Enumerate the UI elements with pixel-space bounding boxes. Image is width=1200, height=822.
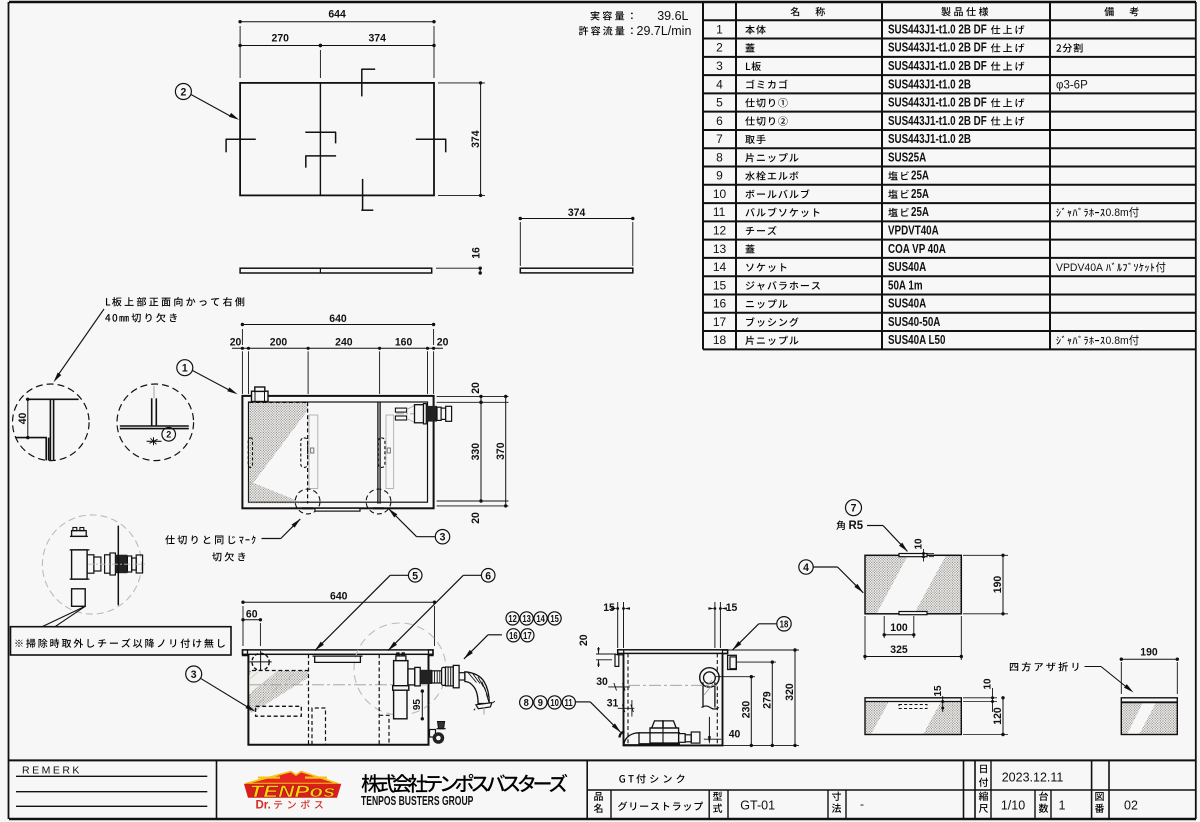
svg-text:1: 1 [182, 362, 188, 374]
svg-text:20: 20 [230, 336, 242, 348]
svg-text:SUS40A: SUS40A [888, 298, 926, 311]
svg-text:20: 20 [470, 512, 482, 524]
svg-text:240: 240 [335, 336, 352, 348]
svg-text:16: 16 [470, 247, 482, 259]
svg-text:200: 200 [270, 336, 287, 348]
svg-text:10: 10 [713, 187, 727, 201]
svg-text:8: 8 [524, 698, 530, 709]
svg-text:SUS40-50A: SUS40-50A [888, 316, 940, 329]
svg-text:120: 120 [992, 707, 1004, 724]
svg-text:7: 7 [851, 502, 857, 514]
svg-text:5: 5 [716, 96, 723, 110]
svg-text:TENPOS BUSTERS GROUP: TENPOS BUSTERS GROUP [361, 794, 473, 808]
svg-text:25A: 25A [911, 188, 929, 201]
svg-text:0.8m付: 0.8m付 [1106, 206, 1140, 219]
svg-text:11: 11 [565, 697, 573, 708]
svg-text:-: - [860, 797, 864, 811]
svg-text:0.8m付: 0.8m付 [1106, 334, 1140, 347]
svg-text:25A: 25A [911, 206, 929, 219]
svg-text:R5: R5 [849, 519, 864, 532]
svg-text:18: 18 [713, 333, 727, 347]
svg-text:SUS443J1-t1.0 2B DF: SUS443J1-t1.0 2B DF [888, 115, 989, 128]
svg-text:1: 1 [1059, 799, 1066, 813]
svg-text:17: 17 [713, 315, 727, 329]
svg-text:374: 374 [568, 207, 585, 219]
svg-text:SUS40A: SUS40A [888, 261, 926, 274]
svg-text:SUS443J1-t1.0 2B DF: SUS443J1-t1.0 2B DF [888, 97, 989, 110]
svg-text:31: 31 [607, 697, 619, 709]
svg-text:φ3-6P: φ3-6P [1056, 79, 1088, 91]
svg-text:5: 5 [412, 570, 418, 582]
svg-text:370: 370 [495, 442, 507, 459]
svg-text:6: 6 [485, 570, 491, 582]
svg-text:644: 644 [328, 8, 345, 20]
svg-text:2: 2 [716, 41, 723, 55]
svg-text:15: 15 [713, 278, 727, 292]
svg-text:270: 270 [272, 32, 289, 44]
svg-text:60: 60 [246, 608, 258, 620]
svg-text:4: 4 [803, 562, 809, 574]
svg-text:SUS443J1-t1.0 2B DF: SUS443J1-t1.0 2B DF [888, 60, 989, 73]
svg-text:GT-01: GT-01 [740, 799, 775, 813]
svg-text:10: 10 [550, 697, 559, 708]
svg-text:374: 374 [368, 32, 385, 44]
svg-text:10: 10 [913, 538, 924, 549]
svg-text:20: 20 [437, 336, 449, 348]
svg-text:16: 16 [509, 630, 518, 641]
svg-text:6: 6 [716, 114, 723, 128]
svg-text:190: 190 [1140, 646, 1157, 658]
svg-text:SUS443J1-t1.0 2B: SUS443J1-t1.0 2B [888, 133, 971, 146]
svg-text:640: 640 [330, 590, 347, 602]
svg-text:REMERK: REMERK [22, 765, 82, 777]
svg-text:7: 7 [716, 132, 723, 146]
svg-text:20: 20 [470, 382, 482, 394]
svg-text:18: 18 [780, 618, 789, 629]
svg-text:29.7L/min: 29.7L/min [637, 24, 692, 38]
svg-text:2: 2 [166, 430, 171, 440]
svg-text:17: 17 [523, 630, 532, 641]
svg-text:100: 100 [890, 622, 907, 634]
svg-text:3: 3 [191, 669, 197, 681]
svg-text:SUS443J1-t1.0 2B DF: SUS443J1-t1.0 2B DF [888, 23, 989, 36]
svg-text:SUS40A L50: SUS40A L50 [888, 334, 945, 347]
svg-text:30: 30 [596, 676, 608, 688]
svg-text:10: 10 [982, 678, 993, 689]
svg-text:50A 1m: 50A 1m [888, 279, 923, 292]
svg-text:SUS443J1-t1.0 2B DF: SUS443J1-t1.0 2B DF [888, 42, 989, 55]
svg-text:COA VP 40A: COA VP 40A [888, 243, 946, 256]
svg-text:40: 40 [17, 413, 29, 425]
svg-text:14: 14 [536, 613, 545, 624]
svg-text:374: 374 [470, 130, 482, 147]
svg-text:9: 9 [716, 169, 723, 183]
svg-text:15: 15 [933, 685, 944, 696]
svg-text:15: 15 [603, 602, 615, 614]
svg-text:11: 11 [713, 205, 726, 219]
svg-text:40: 40 [729, 728, 741, 740]
svg-text:325: 325 [890, 644, 907, 656]
svg-text:12: 12 [713, 224, 727, 238]
svg-text:VPDVT40A: VPDVT40A [888, 224, 939, 237]
svg-text:39.6L: 39.6L [657, 9, 688, 23]
svg-text:02: 02 [1124, 799, 1138, 813]
svg-text:190: 190 [992, 576, 1004, 593]
svg-text:13: 13 [522, 613, 531, 624]
svg-text:160: 160 [395, 336, 412, 348]
svg-text:3: 3 [716, 59, 723, 73]
svg-text:4: 4 [716, 77, 723, 91]
svg-text:640: 640 [329, 313, 346, 325]
svg-text:Dr.: Dr. [256, 799, 271, 811]
svg-text:SUS443J1-t1.0 2B: SUS443J1-t1.0 2B [888, 78, 971, 91]
svg-text:3: 3 [440, 531, 446, 543]
svg-text:2: 2 [180, 86, 186, 98]
svg-text:15: 15 [550, 613, 559, 624]
svg-text:8: 8 [716, 150, 723, 164]
svg-text:330: 330 [470, 443, 482, 460]
svg-text:95: 95 [412, 699, 423, 710]
svg-text:320: 320 [784, 683, 796, 700]
svg-text:16: 16 [713, 297, 727, 311]
svg-text:付: 付 [1155, 261, 1166, 274]
svg-text:1: 1 [716, 22, 723, 36]
svg-text:279: 279 [761, 691, 773, 708]
svg-text:230: 230 [740, 701, 752, 718]
svg-text:15: 15 [726, 602, 738, 614]
svg-text:1/10: 1/10 [1001, 799, 1025, 813]
svg-text:20: 20 [578, 634, 590, 646]
svg-text:SUS25A: SUS25A [888, 151, 926, 164]
svg-text:12: 12 [508, 613, 517, 624]
svg-text:13: 13 [713, 242, 727, 256]
svg-text:2023.12.11: 2023.12.11 [1002, 771, 1064, 785]
svg-text:14: 14 [713, 260, 727, 274]
svg-text:25A: 25A [911, 170, 929, 183]
svg-text:VPDV40A: VPDV40A [1056, 262, 1105, 274]
svg-text:9: 9 [538, 698, 543, 709]
